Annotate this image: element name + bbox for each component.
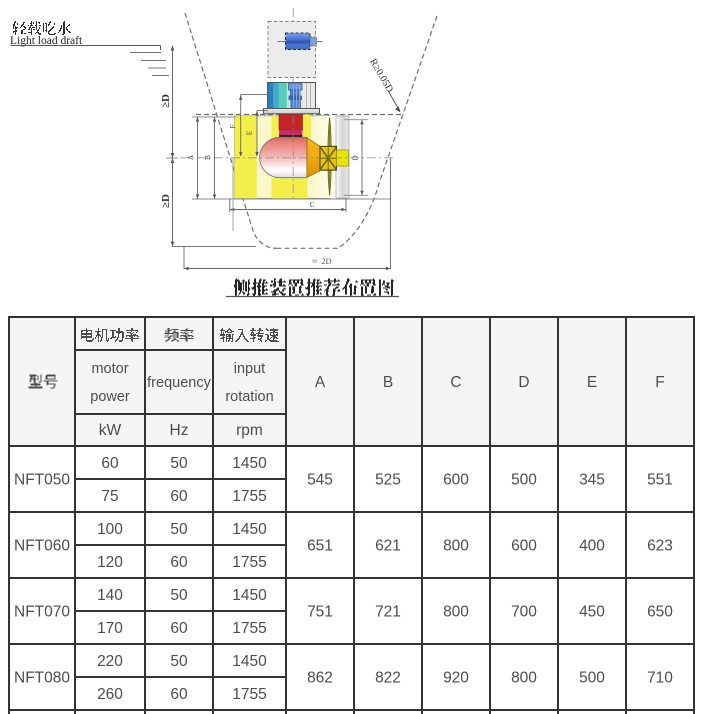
svg-text:≥D: ≥D [160,194,172,208]
svg-text:motor: motor [91,361,128,377]
svg-text:50: 50 [170,653,188,670]
svg-text:E: E [245,130,254,135]
svg-text:100: 100 [97,521,123,538]
svg-text:B: B [203,155,212,160]
svg-text:D: D [351,155,360,161]
svg-text:power: power [90,389,130,405]
svg-text:1755: 1755 [232,686,266,703]
svg-text:A: A [315,374,326,391]
svg-text:A: A [186,154,195,160]
svg-text:1450: 1450 [232,587,267,604]
svg-text:60: 60 [101,455,119,472]
svg-text:75: 75 [101,488,118,505]
svg-text:500: 500 [511,472,537,489]
svg-text:1755: 1755 [232,620,266,637]
svg-text:C: C [309,200,314,209]
svg-text:60: 60 [170,488,188,505]
svg-text:140: 140 [97,587,123,604]
svg-text:800: 800 [443,538,469,555]
svg-text:800: 800 [511,670,537,687]
svg-text:700: 700 [511,604,537,621]
svg-text:E: E [587,374,597,391]
svg-text:120: 120 [97,554,123,571]
svg-text:60: 60 [170,554,188,571]
svg-text:710: 710 [647,670,673,687]
svg-text:rpm: rpm [236,422,263,439]
svg-text:50: 50 [170,521,188,538]
svg-text:NFT050: NFT050 [14,472,70,489]
svg-text:D: D [518,374,529,391]
svg-text:60: 60 [170,620,188,637]
svg-text:651: 651 [307,538,333,555]
svg-text:650: 650 [647,604,673,621]
svg-text:220: 220 [97,653,123,670]
svg-text:F: F [655,374,664,391]
svg-text:345: 345 [579,472,605,489]
svg-text:551: 551 [647,472,673,489]
svg-text:1450: 1450 [232,653,267,670]
svg-text:≈ 2D: ≈ 2D [312,256,331,266]
svg-text:751: 751 [307,604,333,621]
svg-text:frequency: frequency [147,375,211,391]
svg-text:50: 50 [170,587,188,604]
svg-text:260: 260 [97,686,123,703]
svg-text:kW: kW [99,422,122,439]
svg-text:1755: 1755 [232,488,266,505]
svg-text:F: F [228,124,237,128]
svg-text:Hz: Hz [170,422,189,439]
svg-text:862: 862 [307,670,333,687]
svg-text:B: B [383,374,393,391]
svg-text:1450: 1450 [232,521,267,538]
svg-text:525: 525 [375,472,401,489]
svg-text:60: 60 [170,686,188,703]
svg-text:721: 721 [375,604,401,621]
svg-text:621: 621 [375,538,401,555]
svg-text:920: 920 [443,670,469,687]
svg-text:800: 800 [443,604,469,621]
svg-text:623: 623 [647,538,673,555]
svg-text:NFT080: NFT080 [14,670,70,687]
svg-text:400: 400 [579,538,605,555]
svg-text:≥D: ≥D [160,94,172,108]
svg-text:600: 600 [443,472,469,489]
svg-text:500: 500 [579,670,605,687]
svg-text:input: input [234,361,265,377]
svg-text:R≥0.05D: R≥0.05D [367,57,395,94]
svg-text:NFT060: NFT060 [14,538,70,555]
svg-text:50: 50 [170,455,188,472]
svg-text:545: 545 [307,472,333,489]
svg-text:170: 170 [97,620,123,637]
svg-text:600: 600 [511,538,537,555]
svg-text:450: 450 [579,604,605,621]
svg-text:NFT070: NFT070 [14,604,70,621]
svg-text:1450: 1450 [232,455,267,472]
svg-text:rotation: rotation [225,389,273,405]
svg-text:1755: 1755 [232,554,266,571]
svg-text:822: 822 [375,670,401,687]
svg-text:C: C [450,374,461,391]
